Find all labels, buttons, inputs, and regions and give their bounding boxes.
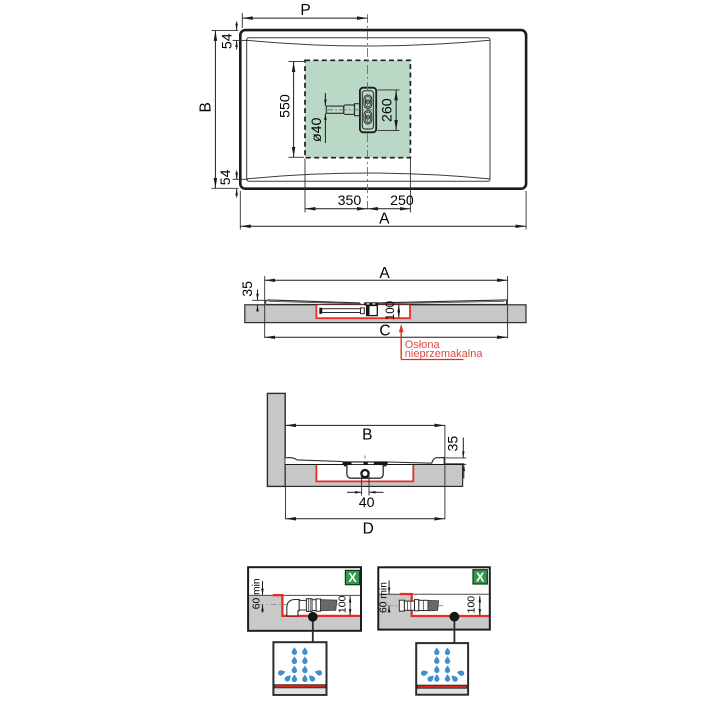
svg-text:550: 550 [278, 94, 294, 118]
svg-text:54: 54 [218, 169, 234, 185]
svg-text:100: 100 [385, 301, 397, 320]
svg-text:D: D [363, 521, 374, 538]
svg-text:B: B [198, 102, 215, 112]
svg-text:60 min: 60 min [379, 582, 390, 613]
svg-text:C: C [379, 322, 390, 339]
svg-text:X: X [476, 570, 485, 584]
svg-text:100: 100 [337, 595, 349, 613]
svg-text:nieprzemakalna: nieprzemakalna [405, 348, 484, 360]
svg-text:B: B [362, 426, 372, 443]
svg-text:260: 260 [379, 98, 395, 122]
svg-text:100: 100 [465, 596, 477, 614]
svg-text:P: P [300, 2, 310, 19]
svg-text:54: 54 [220, 33, 236, 49]
svg-text:A: A [379, 211, 390, 228]
svg-text:X: X [348, 571, 357, 585]
svg-text:40: 40 [359, 495, 375, 511]
svg-text:ø40: ø40 [309, 117, 325, 142]
svg-text:60 min: 60 min [252, 578, 263, 609]
svg-text:A: A [379, 265, 390, 282]
svg-text:35: 35 [446, 436, 462, 452]
svg-text:250: 250 [390, 193, 414, 209]
svg-text:35: 35 [240, 281, 256, 297]
svg-text:350: 350 [338, 193, 362, 209]
